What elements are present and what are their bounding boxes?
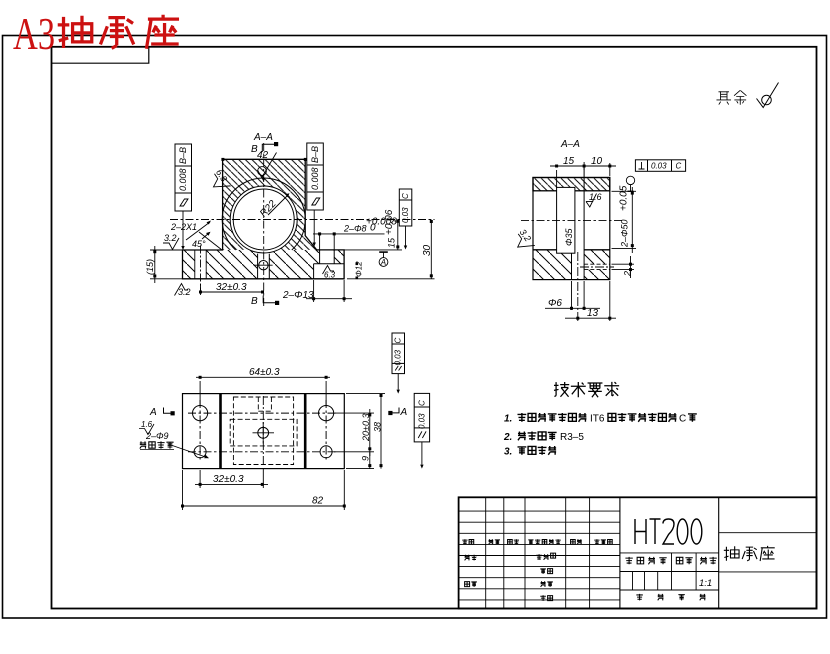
svg-text:38: 38 bbox=[373, 422, 383, 432]
svg-text:1:1: 1:1 bbox=[699, 578, 712, 589]
svg-text:3.2: 3.2 bbox=[164, 233, 177, 243]
svg-text:0: 0 bbox=[370, 223, 376, 234]
svg-text:3.: 3. bbox=[504, 447, 512, 458]
svg-text:2.: 2. bbox=[503, 432, 512, 443]
svg-text:A3: A3 bbox=[13, 9, 55, 59]
svg-text:0.03: 0.03 bbox=[651, 162, 667, 171]
svg-text:15: 15 bbox=[563, 156, 575, 167]
svg-text:C: C bbox=[417, 400, 426, 406]
svg-text:2–Φ50: 2–Φ50 bbox=[620, 219, 630, 248]
svg-text:0.03: 0.03 bbox=[394, 349, 403, 365]
svg-text:A: A bbox=[149, 407, 157, 418]
svg-text:13: 13 bbox=[587, 308, 599, 319]
svg-text:(15): (15) bbox=[145, 259, 155, 275]
svg-text:42: 42 bbox=[257, 150, 269, 161]
svg-text:2–2X1: 2–2X1 bbox=[170, 222, 197, 232]
svg-text:R3–5: R3–5 bbox=[560, 432, 584, 443]
svg-text:32±0.3: 32±0.3 bbox=[216, 282, 247, 293]
svg-text:1.: 1. bbox=[504, 414, 512, 425]
svg-text:0.03: 0.03 bbox=[417, 413, 426, 429]
svg-text:45°: 45° bbox=[192, 239, 206, 249]
svg-text:0.008: 0.008 bbox=[310, 167, 320, 190]
svg-text:B–B: B–B bbox=[310, 146, 320, 163]
svg-text:A: A bbox=[380, 258, 386, 267]
svg-text:0.008: 0.008 bbox=[178, 168, 188, 191]
svg-text:0.03: 0.03 bbox=[401, 207, 410, 223]
svg-text:20±0.3: 20±0.3 bbox=[361, 414, 371, 442]
svg-text:2: 2 bbox=[623, 271, 633, 277]
svg-text:+0.05: +0.05 bbox=[619, 185, 630, 211]
svg-text:C: C bbox=[679, 414, 686, 425]
svg-text:Φ6: Φ6 bbox=[548, 298, 562, 309]
svg-text:10: 10 bbox=[591, 156, 603, 167]
svg-text:15: 15 bbox=[387, 237, 397, 248]
svg-text:Φ35: Φ35 bbox=[564, 227, 574, 246]
svg-text:A–A: A–A bbox=[560, 139, 580, 150]
svg-text:B–B: B–B bbox=[178, 147, 188, 164]
svg-text:9: 9 bbox=[361, 456, 371, 461]
svg-text:6.3: 6.3 bbox=[324, 271, 336, 280]
svg-text:A–A: A–A bbox=[253, 132, 273, 143]
svg-text:64±0.3: 64±0.3 bbox=[249, 367, 280, 378]
svg-text:2–Φ9: 2–Φ9 bbox=[145, 431, 169, 441]
svg-text:30: 30 bbox=[422, 244, 433, 256]
svg-text:+0.06: +0.06 bbox=[384, 209, 395, 235]
svg-text:C: C bbox=[401, 193, 410, 199]
svg-text:C: C bbox=[676, 162, 682, 171]
svg-text:A: A bbox=[400, 407, 408, 418]
svg-text:IT6: IT6 bbox=[590, 414, 605, 425]
svg-text:B: B bbox=[251, 296, 258, 307]
svg-text:32±0.3: 32±0.3 bbox=[213, 474, 244, 485]
svg-text:82: 82 bbox=[312, 496, 324, 507]
svg-text:1.6: 1.6 bbox=[141, 420, 153, 429]
svg-text:2–Φ13: 2–Φ13 bbox=[282, 290, 314, 301]
svg-text:C: C bbox=[394, 338, 403, 344]
svg-text:2–Φ8: 2–Φ8 bbox=[343, 224, 367, 234]
